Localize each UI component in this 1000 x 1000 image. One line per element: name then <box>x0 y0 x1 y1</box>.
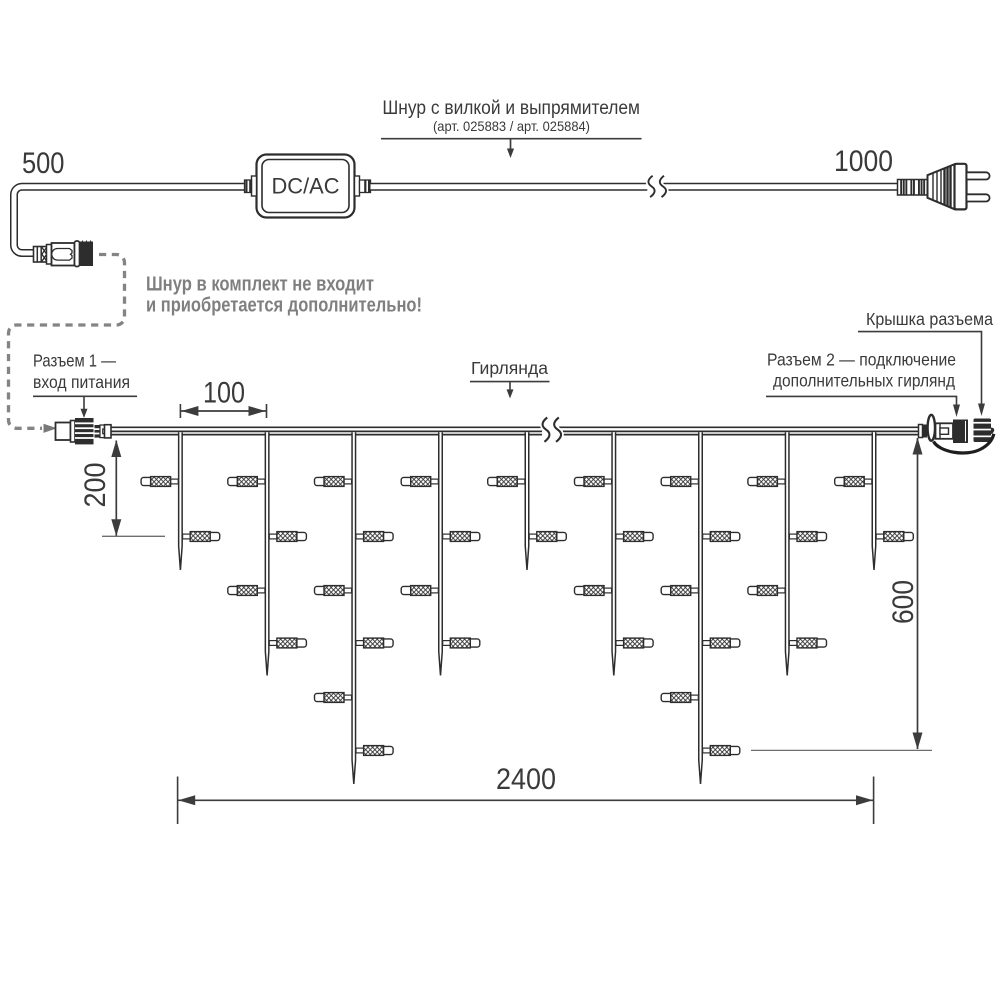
svg-text:(арт. 025883 / арт. 025884): (арт. 025883 / арт. 025884) <box>433 118 590 134</box>
svg-text:и приобретается дополнительно!: и приобретается дополнительно! <box>146 295 422 317</box>
svg-text:500: 500 <box>22 147 65 180</box>
svg-text:100: 100 <box>203 377 245 410</box>
svg-text:Шнур с вилкой и выпрямителем: Шнур с вилкой и выпрямителем <box>382 97 640 119</box>
svg-text:Гирлянда: Гирлянда <box>471 358 548 378</box>
svg-text:1000: 1000 <box>834 145 893 178</box>
svg-text:Шнур в комплект не входит: Шнур в комплект не входит <box>146 274 374 296</box>
svg-text:Разъем 1 —: Разъем 1 — <box>33 351 116 371</box>
svg-text:дополнительных гирлянд: дополнительных гирлянд <box>773 371 955 391</box>
svg-text:600: 600 <box>887 580 920 624</box>
svg-text:DC/AC: DC/AC <box>272 174 340 199</box>
svg-text:200: 200 <box>79 463 112 508</box>
svg-text:вход питания: вход питания <box>33 372 130 392</box>
svg-text:Разъем 2 — подключение: Разъем 2 — подключение <box>767 350 956 370</box>
svg-text:Крышка разъема: Крышка разъема <box>866 309 993 329</box>
svg-text:2400: 2400 <box>496 763 556 796</box>
